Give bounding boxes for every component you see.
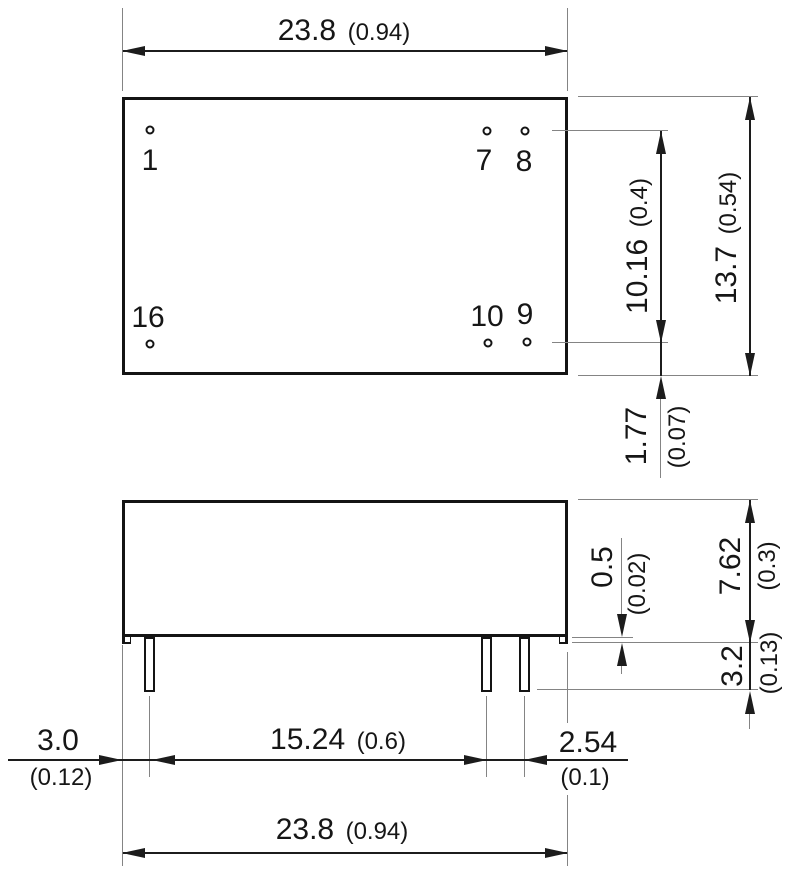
dim-value-in: (0.94) [348, 19, 411, 46]
dim-label: 10.16 (0.4) [623, 178, 653, 314]
dim-value-in: (0.94) [346, 818, 409, 845]
extension-line [578, 499, 758, 500]
dimension-line [749, 97, 751, 376]
extension-line [552, 130, 668, 131]
pin-dot-7 [483, 127, 492, 136]
front-pin-mid [481, 637, 492, 692]
dim-value-mm: 7.62 [716, 537, 746, 595]
extension-line [122, 645, 123, 866]
dimension-line [123, 852, 567, 854]
pin-label-7: 7 [476, 146, 493, 176]
dim-value-in: (0.12) [30, 766, 93, 790]
dim-value-in: (0.4) [626, 178, 653, 227]
arrowhead-left [122, 848, 145, 858]
arrowhead-left [524, 755, 547, 765]
dim-label: 13.7 (0.54) [712, 172, 742, 305]
arrowhead-right [545, 848, 568, 858]
pin-centerline [149, 696, 150, 777]
dimension-tail-line [660, 399, 661, 478]
dim-value-mm: 23.8 [276, 813, 334, 846]
extension-line [572, 637, 633, 638]
pin-dot-10 [484, 339, 493, 348]
dim-value-in: (0.3) [756, 541, 780, 590]
dim-value-mm: 1.77 [622, 407, 652, 465]
extension-line [578, 96, 758, 97]
standoff-step-left [122, 636, 131, 644]
arrowhead-up [745, 97, 755, 120]
dimension-line [123, 50, 567, 52]
dimension-line [660, 131, 662, 343]
pin-label-9: 9 [517, 300, 534, 330]
standoff-step-right [559, 636, 568, 644]
arrowhead-left [122, 46, 145, 56]
arrowhead-down [745, 353, 755, 376]
arrowhead-up [656, 131, 666, 154]
arrowhead-down [656, 320, 666, 343]
pin-label-8: 8 [516, 147, 533, 177]
dim-label: 23.8 (0.94) [276, 815, 409, 845]
drawing-canvas: 1 7 8 16 10 9 23.8 (0.94) 10.16 (0.4) [0, 0, 800, 879]
dim-value-in: (0.1) [560, 766, 609, 790]
dimension-tail-line [621, 538, 622, 615]
dimension-tail-line [749, 714, 750, 729]
dim-value-in: (0.13) [758, 632, 782, 695]
dim-value-mm: 2.54 [559, 728, 617, 758]
front-pin-left [144, 637, 155, 692]
pin-label-1: 1 [142, 146, 159, 176]
extension-line [578, 375, 758, 376]
dim-label: 15.24 (0.6) [270, 725, 406, 755]
dim-value-in: (0.07) [666, 406, 690, 469]
extension-line [552, 342, 668, 343]
pin-dot-9 [523, 338, 532, 347]
arrowhead-right [464, 755, 487, 765]
pin-label-16: 16 [131, 303, 164, 333]
dim-label: 23.8 (0.94) [278, 16, 411, 46]
pin-dot-16 [146, 340, 155, 349]
pin-dot-8 [521, 127, 530, 136]
pin-dot-1 [146, 126, 155, 135]
arrowhead-right [99, 755, 122, 765]
front-pin-right [519, 637, 530, 692]
dimension-tail-line [621, 666, 622, 674]
dim-value-mm: 0.5 [588, 546, 618, 588]
arrowhead-left [152, 755, 175, 765]
front-view-body-outline [122, 500, 568, 637]
arrowhead-down [745, 620, 755, 643]
extension-line [567, 652, 568, 723]
arrowhead-up [745, 500, 755, 523]
pin-label-10: 10 [470, 302, 503, 332]
dim-value-in: (0.02) [626, 553, 650, 616]
arrowhead-up [745, 691, 755, 714]
dimension-line [660, 343, 662, 376]
dim-value-mm: 23.8 [278, 14, 336, 47]
arrowhead-down [617, 614, 627, 637]
dim-value-mm: 13.7 [710, 246, 743, 304]
arrowhead-right [545, 46, 568, 56]
extension-line [572, 642, 758, 643]
extension-line [537, 689, 758, 690]
dimension-line [749, 643, 751, 690]
dim-value-mm: 10.16 [621, 239, 654, 314]
top-view-body-outline [122, 97, 568, 375]
dim-value-mm: 15.24 [270, 723, 345, 756]
dim-value-mm: 3.2 [718, 645, 748, 687]
dim-value-in: (0.6) [357, 728, 406, 755]
dim-value-in: (0.54) [715, 172, 742, 235]
dim-value-mm: 3.0 [37, 726, 79, 756]
arrowhead-up [617, 643, 627, 666]
arrowhead-up [656, 376, 666, 399]
